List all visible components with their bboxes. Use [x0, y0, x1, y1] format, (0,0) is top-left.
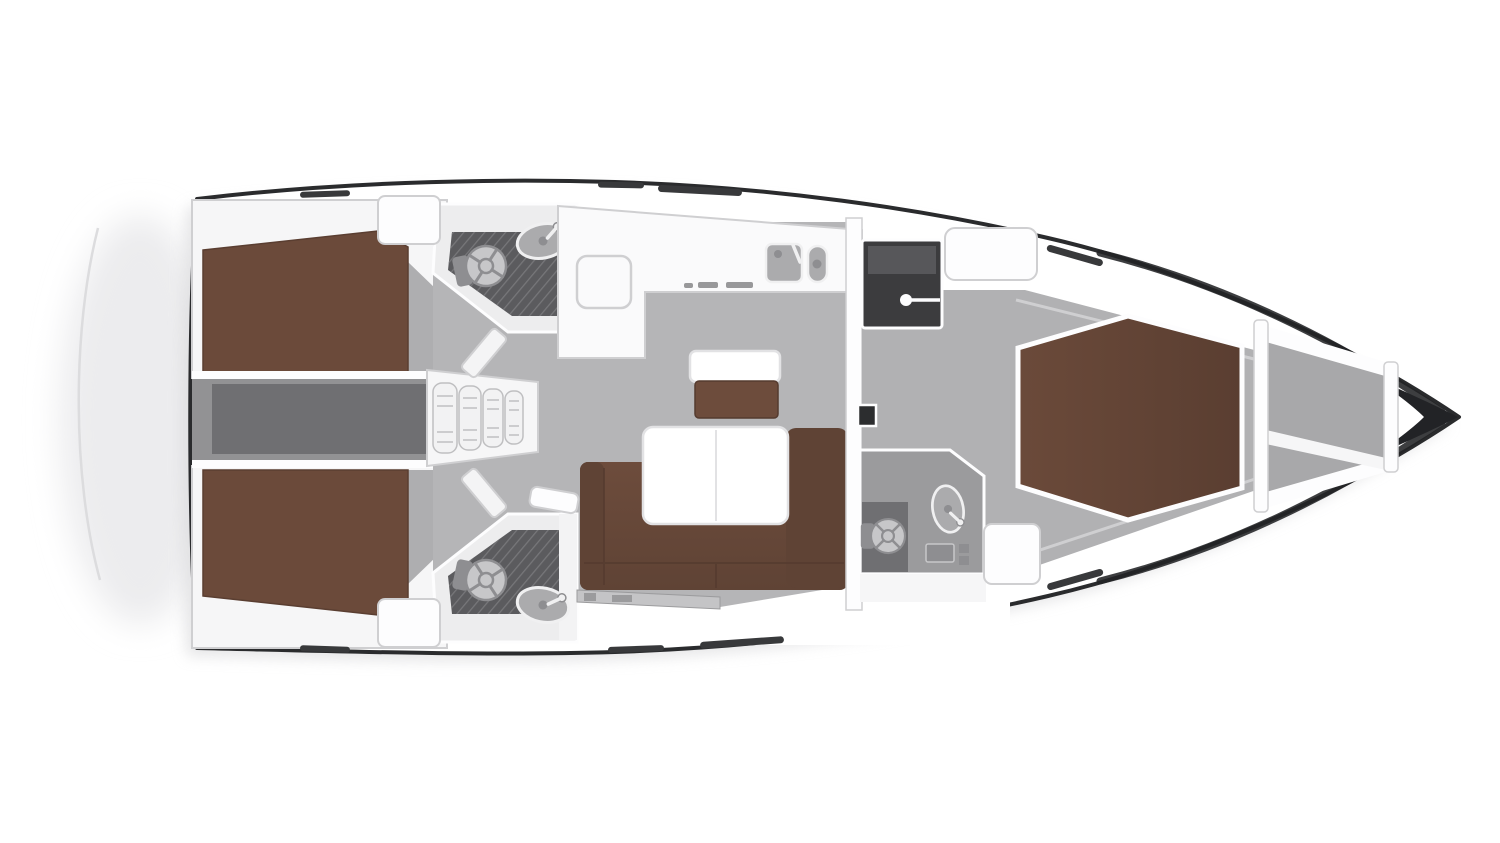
- sideboard-top: [690, 351, 780, 382]
- toilet-icon: [861, 519, 905, 553]
- companionway-steps: [427, 370, 538, 466]
- step-2: [459, 386, 481, 450]
- forward-cabin-bow-bulkhead: [1254, 320, 1268, 512]
- locker-latch: [584, 593, 596, 601]
- wardrobe-shelf: [868, 246, 936, 274]
- yacht-floor-plan-page: [0, 0, 1500, 843]
- stove-handle: [726, 282, 753, 288]
- aft-head-starboard-vanity: [559, 514, 577, 640]
- tv-screen: [858, 405, 876, 426]
- forward-berth: [1018, 316, 1242, 520]
- sink-drain: [813, 260, 822, 269]
- vanity-drawer: [959, 544, 969, 553]
- locker-latch: [612, 595, 632, 602]
- deck-locker-aft-port: [378, 196, 440, 244]
- corridor-wall-top: [192, 371, 450, 379]
- deck-locker-aft-starboard: [378, 599, 440, 647]
- step-4: [505, 391, 523, 444]
- stove-handle: [698, 282, 718, 288]
- stove-knob: [684, 283, 693, 288]
- forward-head-base-locker: [860, 574, 986, 602]
- aft-cabin-starboard-berth: [203, 470, 408, 615]
- sofa-backrest-left: [580, 462, 604, 590]
- engine-compartment: [192, 371, 450, 468]
- step-1: [433, 383, 457, 453]
- saloon-sideboard: [690, 351, 780, 418]
- vanity-drawer: [959, 556, 969, 565]
- aft-cabin-port-berth: [203, 231, 408, 376]
- corridor-wall-bottom: [192, 460, 450, 468]
- forward-head-vanity: [926, 544, 954, 562]
- yacht-floor-plan: [0, 0, 1500, 843]
- sink-drain: [774, 250, 782, 258]
- deck-hatch-slit: [598, 182, 644, 189]
- deck-locker-forward-starboard: [984, 524, 1040, 584]
- bow-end-wall: [1384, 362, 1398, 472]
- saloon-table: [643, 427, 788, 524]
- sideboard-seat-cushion: [695, 381, 778, 418]
- step-3: [483, 389, 503, 447]
- deck-locker-forward-port: [945, 228, 1037, 280]
- engine-compartment-hatch: [212, 384, 440, 454]
- bow-section: [1254, 320, 1398, 512]
